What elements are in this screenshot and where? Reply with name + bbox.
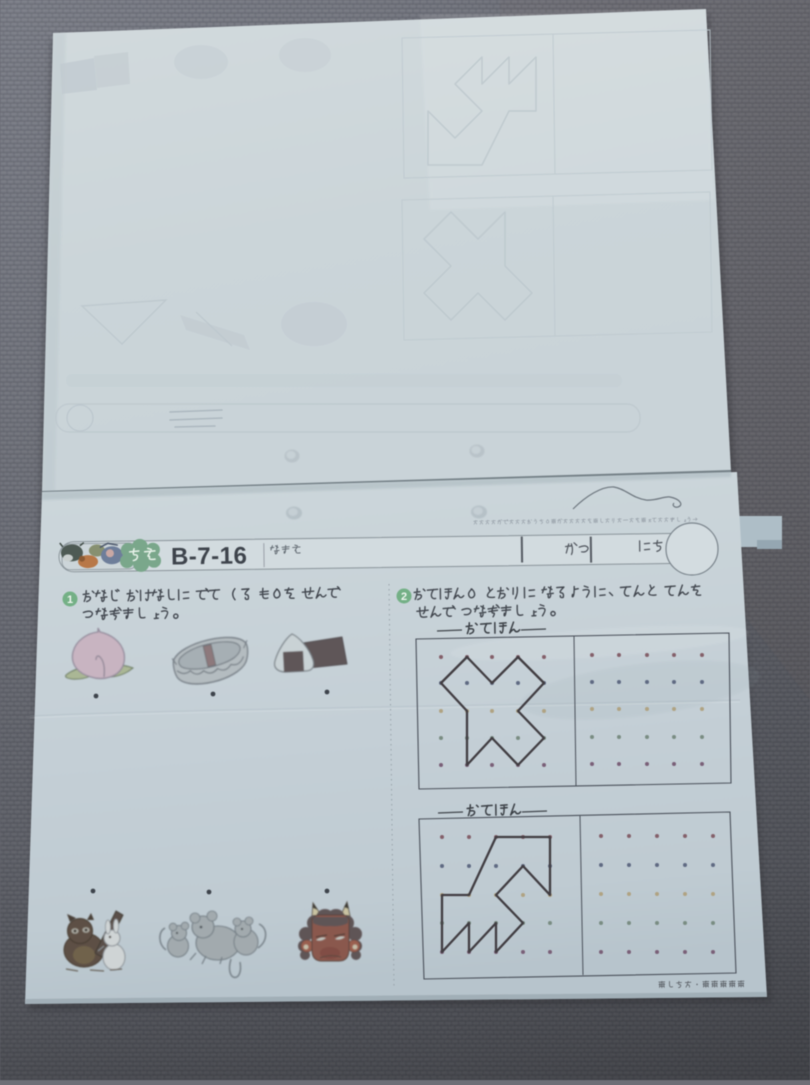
svg-text:B-7-16: B-7-16	[171, 542, 248, 570]
svg-text:1: 1	[67, 594, 73, 606]
svg-text:2: 2	[401, 591, 407, 603]
